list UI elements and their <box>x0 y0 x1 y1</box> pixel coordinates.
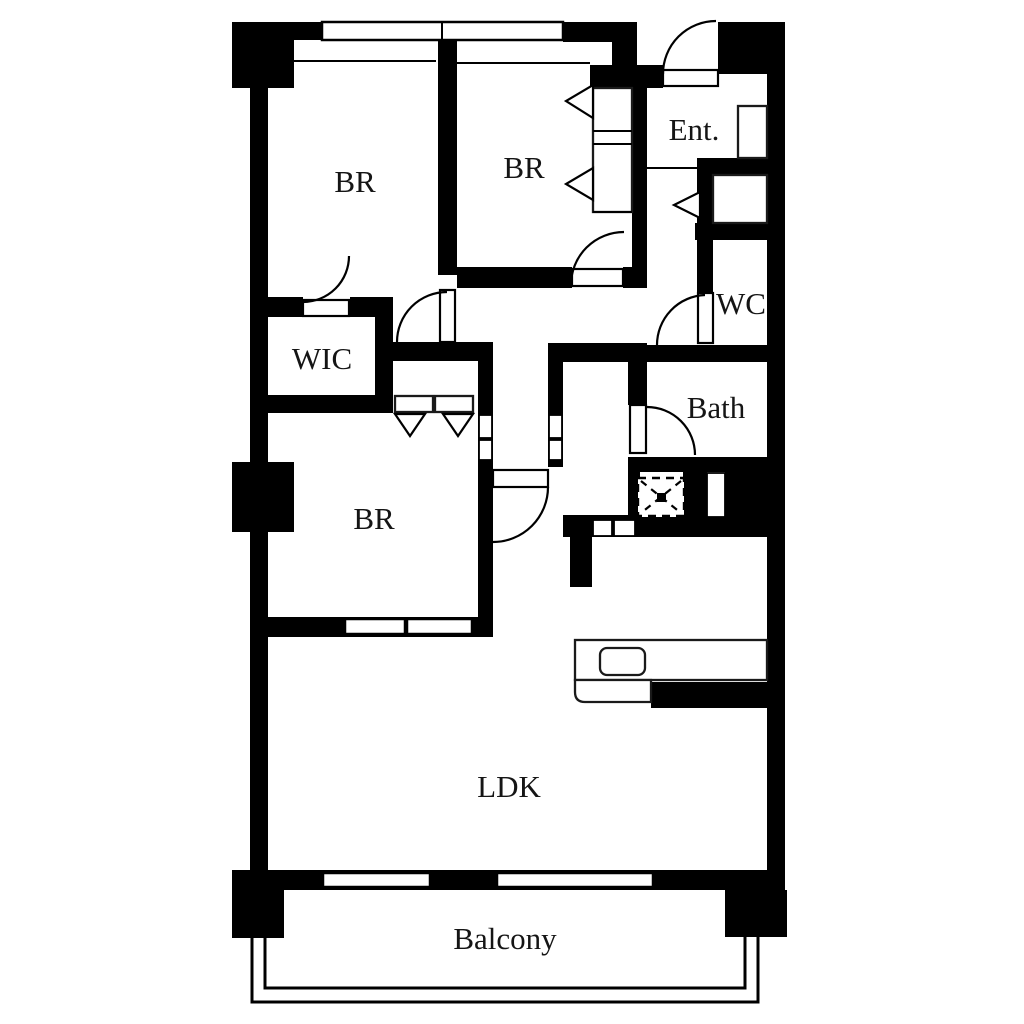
kitchen-sink <box>600 648 645 675</box>
pocket-kitchen-slider-b <box>614 520 635 536</box>
door-leaf-ldk <box>493 470 548 487</box>
slider-br3-ldk-east <box>407 619 472 634</box>
laundry <box>638 473 725 517</box>
wall-washer-right <box>683 472 707 517</box>
wall-wc-bottom-bath-top <box>628 345 767 362</box>
pillar-mid-left <box>232 462 294 532</box>
door-leaf-entrance <box>663 70 718 86</box>
room-label-ldk: LDK <box>477 769 541 804</box>
folding-door-icon-br2-upper <box>566 85 593 118</box>
pocket-washroom-slider-b <box>549 440 562 460</box>
shoe-cabinet <box>738 106 767 158</box>
slider-br3-ldk-west <box>345 619 405 634</box>
window-ldk-balcony-west <box>323 873 430 887</box>
wall-br2-entry-divider <box>632 88 647 267</box>
folding-door-icon-br3-west <box>395 414 425 436</box>
hall-storage <box>713 175 767 223</box>
room-label-bedroom-top-middle: BR <box>503 150 545 185</box>
wall-ent-south <box>697 158 767 175</box>
wall-top-entry-column <box>612 22 637 65</box>
kitchen-counter-return <box>575 680 651 702</box>
folding-door-icon-storage <box>674 192 700 218</box>
room-label-bedroom-lower-left: BR <box>353 501 395 536</box>
br3-closet-panel-west <box>395 396 433 412</box>
pocket-br3-slider-a <box>479 415 492 438</box>
door-leaf-br2 <box>572 269 623 286</box>
wall-br1-br2-divider <box>438 40 457 275</box>
wall-bath-bottom <box>628 457 767 472</box>
wall-storage-bottom <box>695 223 767 240</box>
wall-hall-south <box>393 342 493 361</box>
door-arc-ldk <box>493 487 548 542</box>
wall-kitchen-counter-stub <box>651 682 767 708</box>
wall-washroom-bottom-east <box>628 517 767 537</box>
room-label-wc: WC <box>716 286 766 321</box>
wall-top-mid <box>563 22 612 42</box>
floor-plan-drawing: BR BR Ent. WC WIC Bath BR LDK Balcony <box>0 0 1024 1024</box>
wall-entry-north <box>590 65 663 88</box>
pillar-bottom-right <box>725 890 787 937</box>
folding-door-icon-br2-lower <box>566 168 593 200</box>
window-ldk-balcony-east <box>497 873 653 887</box>
wall-wic-top-east <box>350 297 393 317</box>
folding-door-icon-br3-east <box>443 414 473 436</box>
wall-top-right-of-door <box>718 22 767 74</box>
pillar-top-left <box>232 22 294 88</box>
wall-wic-top-west <box>268 297 303 317</box>
room-label-balcony: Balcony <box>453 921 557 956</box>
pipe-space <box>707 473 725 517</box>
room-label-entrance: Ent. <box>669 112 720 147</box>
wall-wc-left <box>697 240 713 293</box>
wall-bath-left <box>628 362 647 405</box>
wall-left-outer <box>250 22 268 890</box>
door-arc-wic <box>303 256 349 302</box>
door-leaf-bath <box>630 405 646 453</box>
room-label-bath: Bath <box>687 390 746 425</box>
wall-kitchen-stub <box>570 537 592 587</box>
wall-br3-right <box>478 361 493 617</box>
pocket-kitchen-slider-a <box>593 520 612 536</box>
wall-br2-bottom-east <box>623 267 647 288</box>
br2-closet <box>593 88 632 212</box>
room-label-walk-in-closet: WIC <box>292 341 352 376</box>
washing-machine-drain <box>657 493 666 502</box>
wall-wic-right <box>375 317 393 395</box>
br3-closet-panel-east <box>435 396 473 412</box>
pocket-washroom-slider-a <box>549 415 562 438</box>
door-leaf-br1 <box>440 290 455 342</box>
wall-wic-bottom <box>250 395 393 413</box>
wall-washer-corner <box>725 472 767 517</box>
wall-right-outer <box>767 22 785 937</box>
room-label-bedroom-top-left: BR <box>334 164 376 199</box>
pillar-top-left-step <box>294 22 322 40</box>
wall-br2-bottom-west <box>457 267 572 288</box>
floor-plan-canvas: BR BR Ent. WC WIC Bath BR LDK Balcony <box>0 0 1024 1024</box>
door-arc-entrance <box>663 21 716 74</box>
door-leaf-wc <box>698 293 713 343</box>
pocket-br3-slider-b <box>479 440 492 460</box>
